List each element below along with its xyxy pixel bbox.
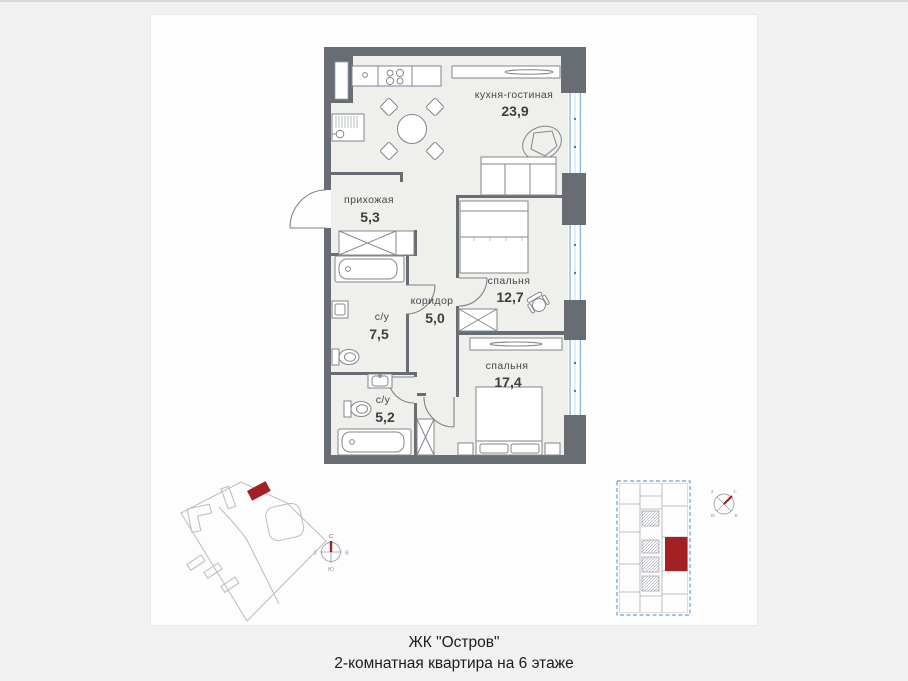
- wardrobe: [417, 419, 434, 455]
- window-strip: [568, 93, 582, 415]
- toilet: [332, 349, 359, 365]
- caption: ЖК "Остров" 2-комнатная квартира на 6 эт…: [0, 632, 908, 674]
- room-area-bedroom-1: 12,7: [496, 289, 523, 305]
- apartment-subtitle: 2-комнатная квартира на 6 этаже: [0, 653, 908, 674]
- kitchen-counter: [352, 66, 441, 86]
- apartment-floorplan: кухня-гостиная 23,9 прихожая 5,3 спальня…: [284, 45, 592, 469]
- room-label-bathroom-1: с/у: [375, 311, 390, 323]
- room-area-bathroom-1: 7,5: [369, 326, 389, 342]
- site-buildings: [187, 481, 305, 592]
- washbasin: [368, 374, 392, 388]
- room-area-corridor: 5,0: [425, 310, 445, 326]
- compass-needle: [724, 496, 732, 504]
- nightstand: [545, 443, 560, 455]
- site-compass: С Ю З В: [313, 534, 349, 573]
- room-label-bedroom-2: спальня: [486, 360, 529, 372]
- room-label-corridor: коридор: [411, 295, 454, 307]
- window-segment: [568, 225, 582, 300]
- window-segment: [568, 93, 582, 173]
- compass-north-label: С: [733, 489, 737, 494]
- wardrobe: [459, 309, 497, 331]
- complex-title: ЖК "Остров": [0, 632, 908, 653]
- site-plan: С Ю З В: [169, 467, 384, 625]
- compass-east-label: В: [345, 551, 349, 557]
- plan-canvas: кухня-гостиная 23,9 прихожая 5,3 спальня…: [150, 14, 758, 626]
- hallway-wardrobe: [339, 231, 414, 255]
- page: { "caption": { "line1": "ЖК \"Остров\"",…: [0, 0, 908, 681]
- window-segment: [568, 340, 582, 415]
- sink-cabinet: [332, 114, 364, 141]
- compass-east-label: В: [734, 513, 737, 518]
- room-area-hallway: 5,3: [360, 209, 380, 225]
- room-label-hallway: прихожая: [344, 194, 394, 206]
- floor-schematic: С Ю З В: [609, 474, 759, 619]
- room-label-bathroom-2: с/у: [376, 394, 391, 406]
- compass-west-label: З: [711, 489, 714, 494]
- building-outline: [187, 555, 205, 570]
- site-outline: [181, 482, 326, 621]
- compass-north-label: С: [329, 534, 333, 540]
- washbasin: [332, 301, 348, 318]
- bathtub: [335, 256, 404, 282]
- tv-console: [470, 338, 562, 350]
- bed: [476, 387, 542, 455]
- shaft-niche: [335, 62, 348, 99]
- room-area-kitchen-living: 23,9: [501, 103, 528, 119]
- building-outline: [221, 486, 236, 508]
- highlighted-apartment: [665, 537, 688, 571]
- compass-south-label: Ю: [711, 513, 716, 518]
- bathtub: [338, 429, 411, 455]
- tv-console: [452, 66, 560, 78]
- compass-west-label: З: [313, 551, 317, 557]
- entrance-door: [290, 190, 326, 228]
- building-outline: [264, 502, 305, 543]
- room-area-bedroom-2: 17,4: [494, 374, 521, 390]
- highlighted-building: [247, 481, 271, 501]
- bed: [460, 201, 528, 273]
- room-label-bedroom-1: спальня: [488, 275, 531, 287]
- room-label-kitchen-living: кухня-гостиная: [475, 89, 553, 101]
- toilet: [344, 401, 371, 417]
- building-outline: [221, 577, 239, 592]
- nightstand: [458, 443, 473, 455]
- room-area-bathroom-2: 5,2: [375, 409, 395, 425]
- sofa: [481, 157, 556, 195]
- building-outline: [187, 504, 214, 532]
- elevator-core: [642, 511, 659, 591]
- schematic-compass: С Ю З В: [711, 489, 738, 518]
- compass-south-label: Ю: [328, 567, 334, 573]
